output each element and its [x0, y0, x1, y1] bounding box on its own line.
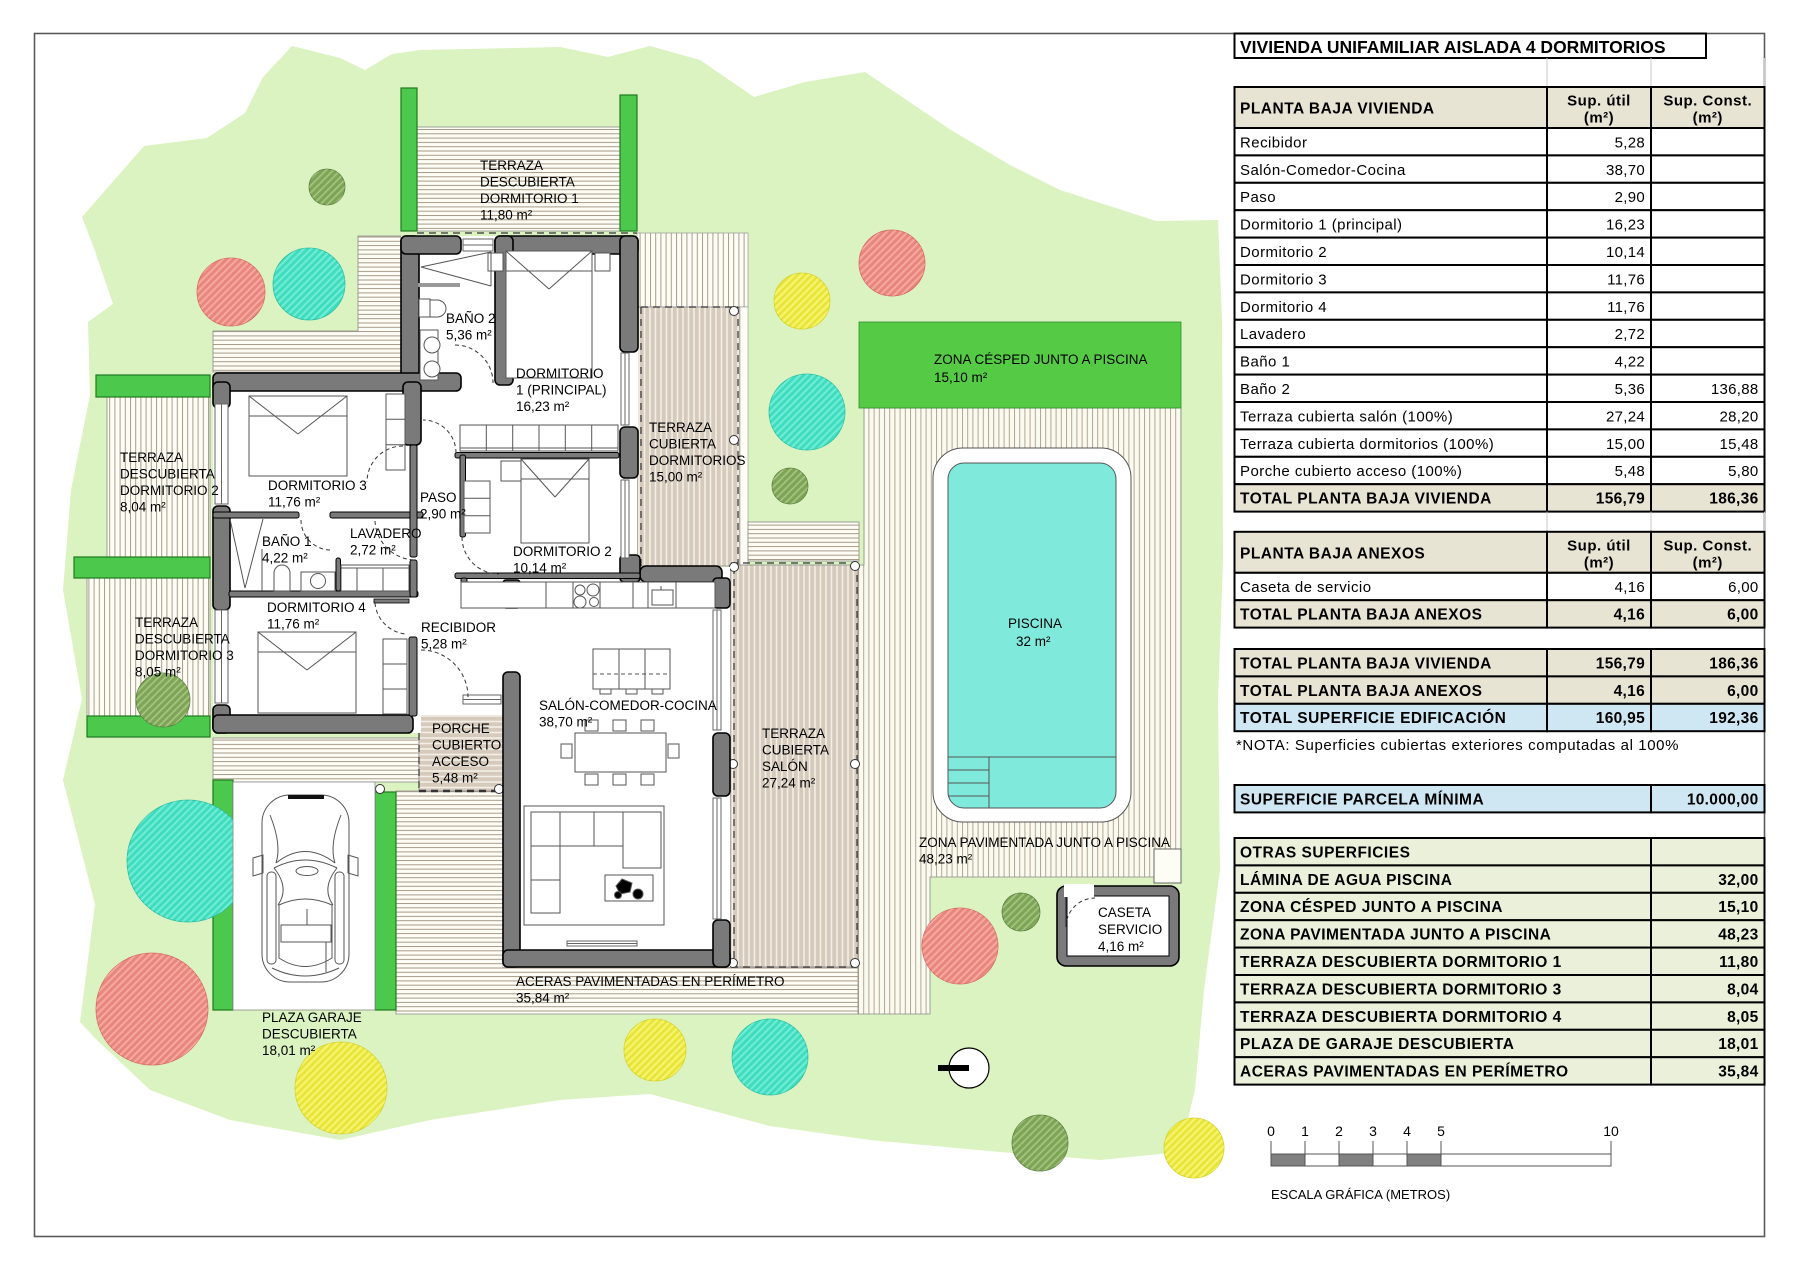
svg-text:8,05 m²: 8,05 m² — [135, 665, 181, 680]
svg-text:Dormitorio 4: Dormitorio 4 — [1240, 299, 1327, 316]
svg-text:5,36: 5,36 — [1615, 381, 1645, 398]
svg-text:1 (PRINCIPAL): 1 (PRINCIPAL) — [516, 383, 607, 398]
svg-text:DORMITORIO 1: DORMITORIO 1 — [480, 191, 579, 206]
svg-text:DORMITORIO 2: DORMITORIO 2 — [120, 483, 219, 498]
svg-text:DESCUBIERTA: DESCUBIERTA — [262, 1027, 357, 1042]
svg-text:6,00: 6,00 — [1727, 683, 1758, 700]
svg-text:DORMITORIO 4: DORMITORIO 4 — [267, 600, 366, 615]
svg-text:PORCHE: PORCHE — [432, 721, 490, 736]
svg-text:Paso: Paso — [1240, 189, 1276, 206]
svg-text:PLANTA BAJA VIVIENDA: PLANTA BAJA VIVIENDA — [1240, 101, 1435, 118]
svg-text:LÁMINA DE AGUA PISCINA: LÁMINA DE AGUA PISCINA — [1240, 872, 1453, 889]
svg-text:4,16: 4,16 — [1615, 579, 1645, 596]
svg-text:TOTAL PLANTA BAJA ANEXOS: TOTAL PLANTA BAJA ANEXOS — [1240, 683, 1483, 700]
svg-text:TERRAZA DESCUBIERTA DORMITORIO: TERRAZA DESCUBIERTA DORMITORIO 1 — [1240, 954, 1562, 971]
svg-text:TERRAZA: TERRAZA — [762, 726, 825, 741]
svg-text:Baño 1: Baño 1 — [1240, 354, 1290, 371]
svg-text:RECIBIDOR: RECIBIDOR — [421, 620, 496, 635]
svg-text:Salón-Comedor-Cocina: Salón-Comedor-Cocina — [1240, 162, 1406, 179]
svg-text:192,36: 192,36 — [1709, 710, 1758, 727]
svg-text:11,76 m²: 11,76 m² — [267, 617, 320, 632]
svg-text:ACERAS PAVIMENTADAS EN PERÍMET: ACERAS PAVIMENTADAS EN PERÍMETRO — [516, 974, 785, 989]
svg-text:1: 1 — [1301, 1123, 1309, 1139]
svg-text:11,80 m²: 11,80 m² — [480, 208, 533, 223]
svg-text:48,23: 48,23 — [1718, 927, 1758, 944]
svg-text:8,05: 8,05 — [1727, 1009, 1758, 1026]
svg-text:15,48: 15,48 — [1719, 436, 1758, 453]
svg-text:(m²): (m²) — [1584, 554, 1614, 571]
svg-text:4: 4 — [1403, 1123, 1411, 1139]
svg-text:DORMITORIOS: DORMITORIOS — [649, 453, 746, 468]
svg-text:Sup. Const.: Sup. Const. — [1663, 537, 1752, 554]
svg-text:CUBIERTO: CUBIERTO — [432, 738, 501, 753]
svg-text:TERRAZA DESCUBIERTA DORMITORIO: TERRAZA DESCUBIERTA DORMITORIO 3 — [1240, 981, 1562, 998]
svg-text:TERRAZA: TERRAZA — [135, 615, 198, 630]
svg-text:TOTAL PLANTA BAJA ANEXOS: TOTAL PLANTA BAJA ANEXOS — [1240, 607, 1483, 624]
svg-text:Porche cubierto acceso (100%): Porche cubierto acceso (100%) — [1240, 463, 1462, 480]
svg-text:15,00: 15,00 — [1606, 436, 1645, 453]
svg-text:32 m²: 32 m² — [1016, 634, 1051, 649]
svg-text:ESCALA GRÁFICA (METROS): ESCALA GRÁFICA (METROS) — [1271, 1187, 1450, 1202]
svg-text:TOTAL PLANTA BAJA VIVIENDA: TOTAL PLANTA BAJA VIVIENDA — [1240, 491, 1492, 508]
svg-text:(m²): (m²) — [1693, 110, 1723, 127]
svg-text:4,16: 4,16 — [1614, 683, 1645, 700]
svg-text:(m²): (m²) — [1693, 554, 1723, 571]
svg-text:11,76: 11,76 — [1607, 299, 1645, 316]
svg-text:5,48: 5,48 — [1615, 463, 1645, 480]
svg-text:DESCUBIERTA: DESCUBIERTA — [120, 467, 215, 482]
svg-text:5,80: 5,80 — [1728, 463, 1758, 480]
svg-text:TERRAZA: TERRAZA — [480, 158, 543, 173]
svg-text:27,24: 27,24 — [1606, 408, 1645, 425]
svg-text:*NOTA: Superficies cubiertas e: *NOTA: Superficies cubiertas exteriores … — [1236, 737, 1679, 754]
svg-text:Recibidor: Recibidor — [1240, 134, 1307, 151]
svg-text:CUBIERTA: CUBIERTA — [649, 437, 716, 452]
svg-text:186,36: 186,36 — [1709, 491, 1758, 508]
svg-text:28,20: 28,20 — [1719, 408, 1758, 425]
svg-text:PLANTA BAJA ANEXOS: PLANTA BAJA ANEXOS — [1240, 545, 1425, 562]
svg-text:2,90: 2,90 — [1615, 189, 1645, 206]
svg-text:Terraza cubierta salón (100%): Terraza cubierta salón (100%) — [1240, 408, 1453, 425]
svg-text:2,72: 2,72 — [1615, 326, 1645, 343]
svg-text:8,04: 8,04 — [1727, 981, 1758, 998]
svg-text:5,28: 5,28 — [1615, 134, 1645, 151]
svg-text:SERVICIO: SERVICIO — [1098, 922, 1162, 937]
svg-text:VIVIENDA UNIFAMILIAR AISLADA 4: VIVIENDA UNIFAMILIAR AISLADA 4 DORMITORI… — [1240, 37, 1666, 57]
svg-text:Sup. útil: Sup. útil — [1567, 537, 1631, 554]
svg-text:Caseta de servicio: Caseta de servicio — [1240, 579, 1372, 596]
svg-text:Terraza cubierta dormitorios (: Terraza cubierta dormitorios (100%) — [1240, 436, 1494, 453]
svg-text:ACCESO: ACCESO — [432, 754, 489, 769]
svg-text:5,48 m²: 5,48 m² — [432, 771, 478, 786]
svg-text:4,16 m²: 4,16 m² — [1098, 939, 1144, 954]
svg-text:Dormitorio 3: Dormitorio 3 — [1240, 271, 1327, 288]
svg-text:136,88: 136,88 — [1711, 381, 1759, 398]
svg-text:BAÑO 1: BAÑO 1 — [262, 534, 312, 549]
svg-text:DORMITORIO: DORMITORIO — [516, 366, 604, 381]
svg-text:4,22: 4,22 — [1615, 354, 1645, 371]
svg-text:6,00: 6,00 — [1728, 579, 1758, 596]
svg-text:2: 2 — [1335, 1123, 1343, 1139]
svg-text:5,36 m²: 5,36 m² — [446, 328, 492, 343]
svg-text:TOTAL SUPERFICIE EDIFICACIÓN: TOTAL SUPERFICIE EDIFICACIÓN — [1240, 709, 1506, 727]
svg-text:11,76: 11,76 — [1607, 271, 1645, 288]
svg-text:18,01 m²: 18,01 m² — [262, 1043, 316, 1058]
svg-text:Dormitorio 2: Dormitorio 2 — [1240, 244, 1327, 261]
svg-text:10,14 m²: 10,14 m² — [513, 561, 567, 576]
svg-text:TOTAL PLANTA BAJA VIVIENDA: TOTAL PLANTA BAJA VIVIENDA — [1240, 655, 1492, 672]
svg-text:15,00 m²: 15,00 m² — [649, 470, 703, 485]
svg-text:PLAZA DE GARAJE DESCUBIERTA: PLAZA DE GARAJE DESCUBIERTA — [1240, 1036, 1514, 1053]
svg-text:TERRAZA: TERRAZA — [120, 450, 183, 465]
svg-text:Sup. útil: Sup. útil — [1567, 93, 1631, 110]
svg-text:DORMITORIO 3: DORMITORIO 3 — [135, 648, 234, 663]
svg-text:32,00: 32,00 — [1718, 872, 1758, 889]
svg-text:10: 10 — [1603, 1123, 1619, 1139]
svg-text:0: 0 — [1267, 1123, 1275, 1139]
svg-text:35,84 m²: 35,84 m² — [516, 991, 570, 1006]
svg-text:15,10 m²: 15,10 m² — [934, 370, 988, 385]
svg-text:SALÓN-COMEDOR-COCINA: SALÓN-COMEDOR-COCINA — [539, 698, 717, 713]
svg-text:6,00: 6,00 — [1727, 607, 1758, 624]
svg-text:CUBIERTA: CUBIERTA — [762, 743, 829, 758]
svg-text:ZONA PAVIMENTADA JUNTO A PISCI: ZONA PAVIMENTADA JUNTO A PISCINA — [1240, 927, 1551, 944]
svg-text:16,23: 16,23 — [1606, 217, 1645, 234]
svg-text:PISCINA: PISCINA — [1008, 616, 1062, 631]
svg-text:ZONA CÉSPED JUNTO A PISCINA: ZONA CÉSPED JUNTO A PISCINA — [934, 352, 1148, 367]
svg-text:5: 5 — [1437, 1123, 1445, 1139]
svg-text:(m²): (m²) — [1584, 110, 1614, 127]
svg-text:ZONA PAVIMENTADA JUNTO A PISCI: ZONA PAVIMENTADA JUNTO A PISCINA — [919, 835, 1170, 850]
svg-text:18,01: 18,01 — [1718, 1036, 1758, 1053]
svg-text:186,36: 186,36 — [1709, 655, 1758, 672]
svg-text:156,79: 156,79 — [1596, 655, 1645, 672]
svg-text:BAÑO 2: BAÑO 2 — [446, 311, 496, 326]
svg-text:DORMITORIO 3: DORMITORIO 3 — [268, 478, 367, 493]
svg-text:Dormitorio 1 (principal): Dormitorio 1 (principal) — [1240, 217, 1403, 234]
svg-text:Sup. Const.: Sup. Const. — [1663, 93, 1752, 110]
svg-text:4,22 m²: 4,22 m² — [262, 551, 308, 566]
svg-text:38,70 m²: 38,70 m² — [539, 715, 593, 730]
svg-text:8,04 m²: 8,04 m² — [120, 500, 166, 515]
svg-text:156,79: 156,79 — [1596, 491, 1645, 508]
svg-text:4,16: 4,16 — [1614, 607, 1645, 624]
svg-text:2,72 m²: 2,72 m² — [350, 543, 396, 558]
svg-text:2,90 m²: 2,90 m² — [420, 507, 466, 522]
svg-text:48,23 m²: 48,23 m² — [919, 852, 973, 867]
svg-text:Baño 2: Baño 2 — [1240, 381, 1290, 398]
svg-text:PLAZA GARAJE: PLAZA GARAJE — [262, 1010, 362, 1025]
svg-text:DESCUBIERTA: DESCUBIERTA — [135, 632, 230, 647]
svg-text:CASETA: CASETA — [1098, 905, 1151, 920]
svg-text:5,28 m²: 5,28 m² — [421, 637, 467, 652]
svg-text:TERRAZA: TERRAZA — [649, 420, 712, 435]
svg-text:15,10: 15,10 — [1718, 899, 1758, 916]
svg-text:LAVADERO: LAVADERO — [350, 526, 422, 541]
svg-text:PASO: PASO — [420, 490, 457, 505]
svg-text:10.000,00: 10.000,00 — [1687, 791, 1759, 808]
svg-text:ZONA CÉSPED JUNTO A PISCINA: ZONA CÉSPED JUNTO A PISCINA — [1240, 899, 1503, 916]
svg-text:38,70: 38,70 — [1606, 162, 1645, 179]
svg-text:DESCUBIERTA: DESCUBIERTA — [480, 175, 575, 190]
svg-text:35,84: 35,84 — [1718, 1064, 1758, 1081]
svg-text:TERRAZA DESCUBIERTA DORMITORIO: TERRAZA DESCUBIERTA DORMITORIO 4 — [1240, 1009, 1562, 1026]
svg-text:27,24 m²: 27,24 m² — [762, 776, 816, 791]
svg-text:DORMITORIO 2: DORMITORIO 2 — [513, 544, 612, 559]
svg-text:OTRAS SUPERFICIES: OTRAS SUPERFICIES — [1240, 844, 1410, 861]
svg-text:ACERAS PAVIMENTADAS EN PERÍMET: ACERAS PAVIMENTADAS EN PERÍMETRO — [1240, 1064, 1569, 1081]
svg-text:10,14: 10,14 — [1606, 244, 1645, 261]
svg-text:11,76 m²: 11,76 m² — [268, 495, 321, 510]
svg-text:Lavadero: Lavadero — [1240, 326, 1306, 343]
svg-text:3: 3 — [1369, 1123, 1377, 1139]
svg-text:SUPERFICIE PARCELA MÍNIMA: SUPERFICIE PARCELA MÍNIMA — [1240, 791, 1484, 808]
svg-text:SALÓN: SALÓN — [762, 759, 808, 774]
svg-text:16,23 m²: 16,23 m² — [516, 399, 570, 414]
svg-text:11,80: 11,80 — [1719, 954, 1758, 971]
svg-text:160,95: 160,95 — [1596, 710, 1645, 727]
